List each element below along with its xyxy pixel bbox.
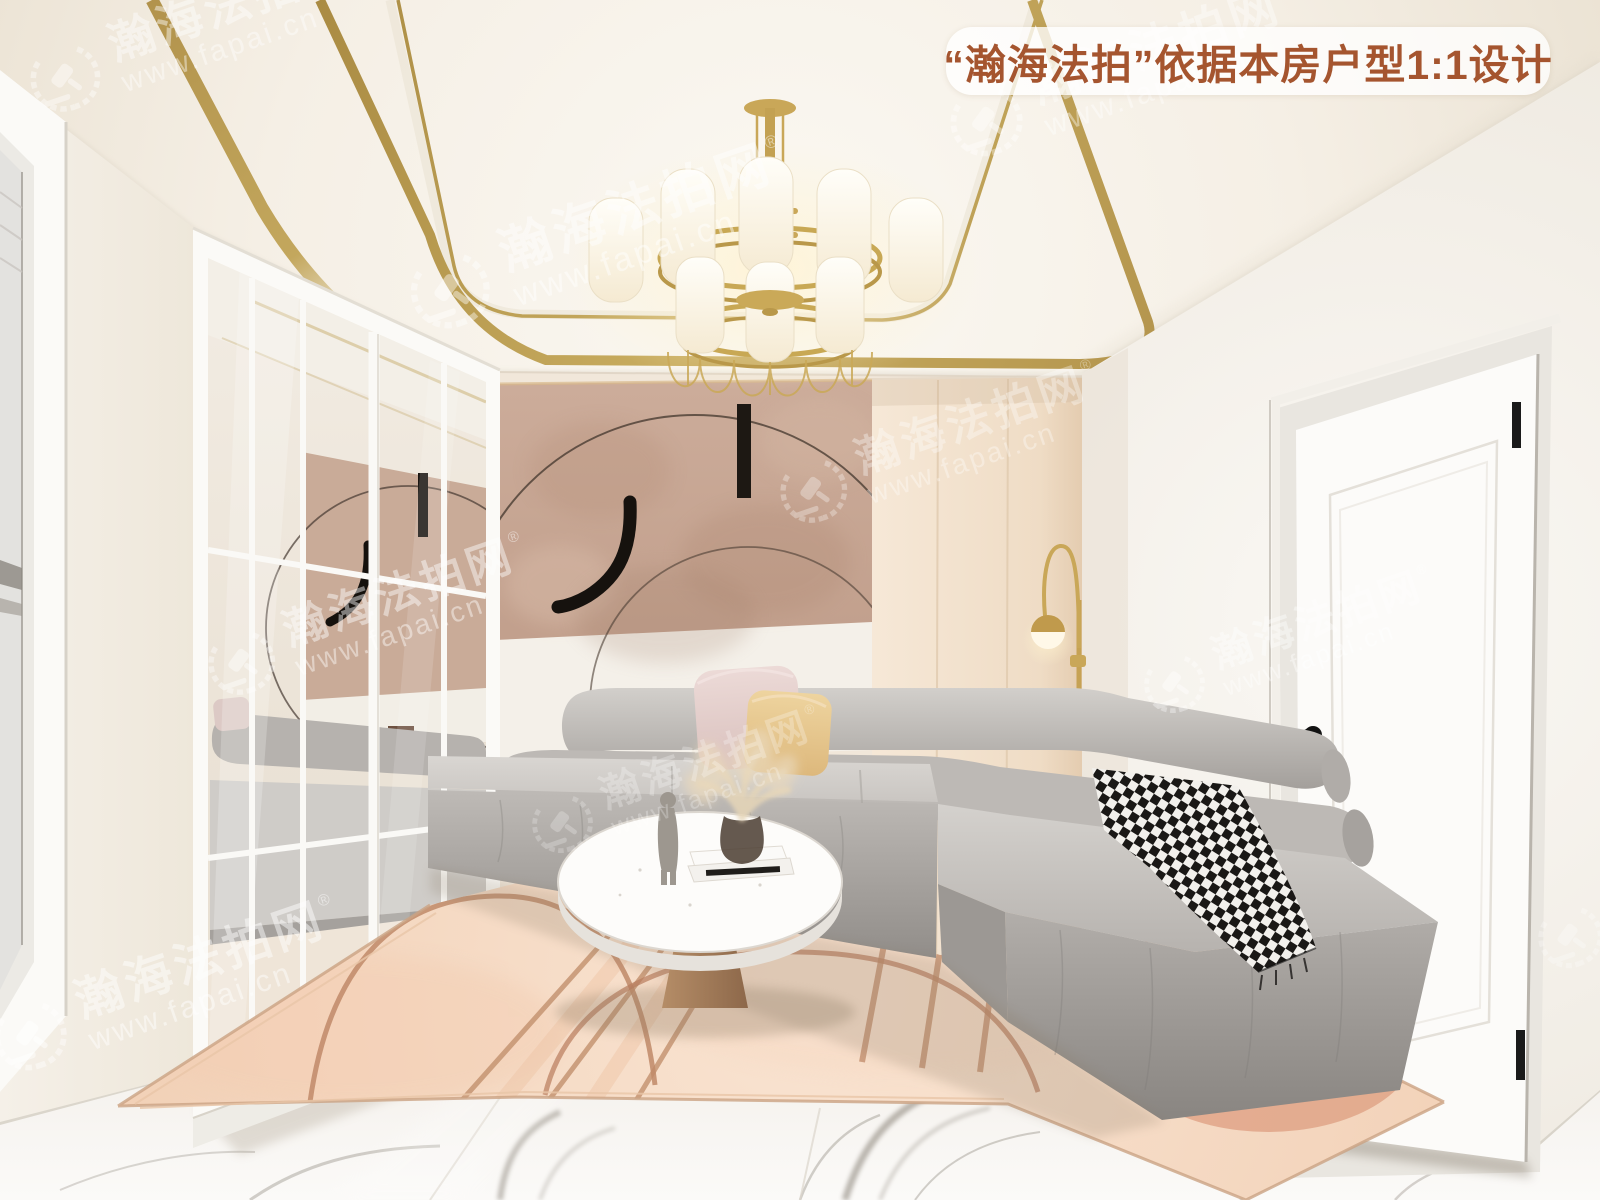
window xyxy=(0,70,66,1092)
design-badge: “瀚海法拍”依据本房户型1:1设计 xyxy=(946,27,1550,95)
door-hinge-bottom xyxy=(1516,1030,1525,1080)
door-hinge-top xyxy=(1512,402,1521,448)
design-badge-text: “瀚海法拍”依据本房户型1:1设计 xyxy=(943,31,1552,91)
left-wall xyxy=(0,70,196,1200)
room-scene xyxy=(0,0,1600,1200)
living-room-render: 瀚海法拍网® www.fapai.cn 瀚海法拍网® www.fapai.cn … xyxy=(0,0,1600,1200)
